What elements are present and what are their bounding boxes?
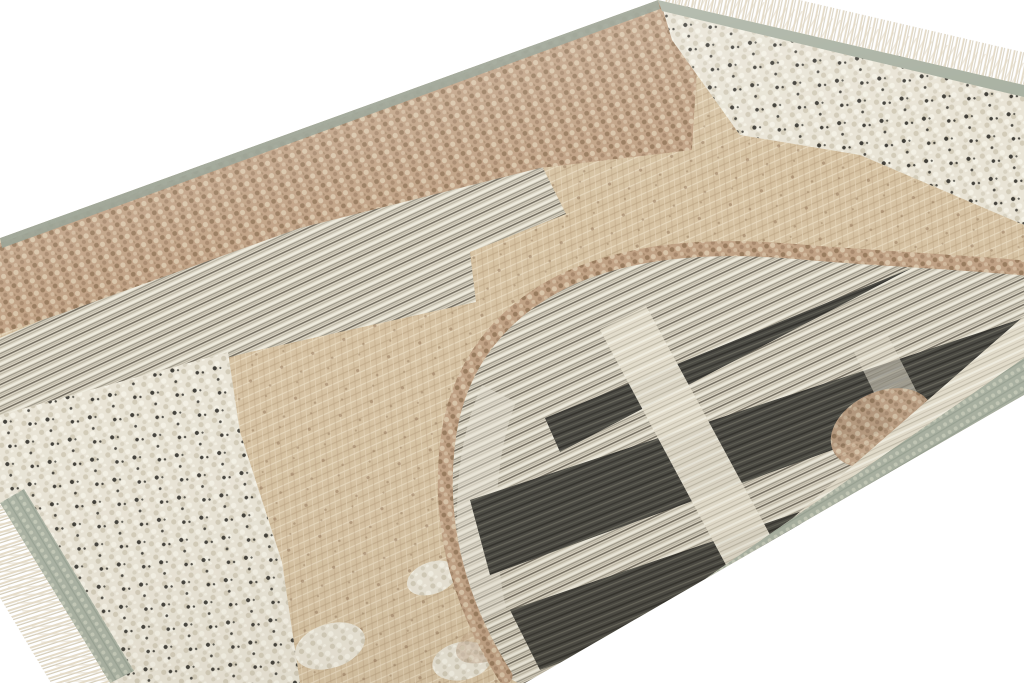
rug-photo: [0, 0, 1024, 683]
product-photo: [0, 0, 1024, 683]
